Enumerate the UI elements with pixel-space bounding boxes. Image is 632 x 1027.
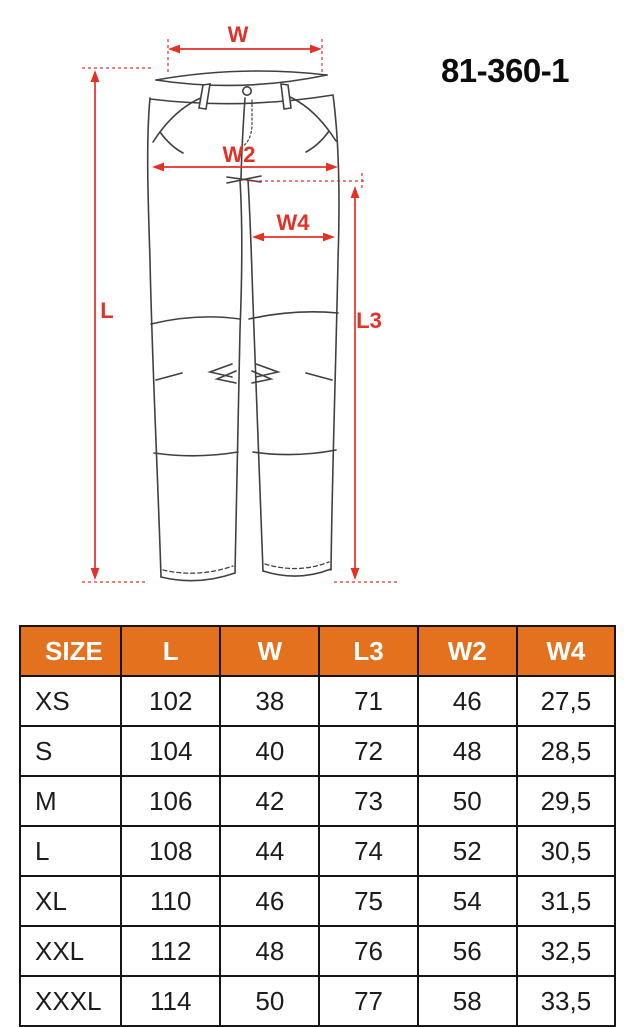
header-cell-size: SIZE <box>20 626 121 676</box>
size-table: SIZE L W L3 W2 W4 XS 102 38 71 46 27,5 S… <box>19 625 616 1027</box>
cell: 40 <box>220 726 319 776</box>
size-table-header-row: SIZE L W L3 W2 W4 <box>20 626 615 676</box>
cell-size: XXL <box>20 926 121 976</box>
cell: 50 <box>418 776 517 826</box>
cell: 108 <box>121 826 220 876</box>
cell-size: L <box>20 826 121 876</box>
table-row: S 104 40 72 48 28,5 <box>20 726 615 776</box>
dimension-label-w4: W4 <box>277 210 311 235</box>
table-row: XXL 112 48 76 56 32,5 <box>20 926 615 976</box>
dimension-label-l: L <box>100 298 113 323</box>
cell: 46 <box>220 876 319 926</box>
header-cell-w4: W4 <box>517 626 615 676</box>
cell: 72 <box>319 726 417 776</box>
cell: 54 <box>418 876 517 926</box>
cell: 52 <box>418 826 517 876</box>
cell: 106 <box>121 776 220 826</box>
cell-size: XL <box>20 876 121 926</box>
header-cell-l3: L3 <box>319 626 417 676</box>
cell: 77 <box>319 976 417 1026</box>
cell: 73 <box>319 776 417 826</box>
table-row: M 106 42 73 50 29,5 <box>20 776 615 826</box>
dimension-lines <box>82 39 397 582</box>
waist-button <box>243 87 251 95</box>
cell: 48 <box>418 726 517 776</box>
cell: 110 <box>121 876 220 926</box>
dimension-label-w: W <box>228 22 249 47</box>
cell: 114 <box>121 976 220 1026</box>
header-cell-w: W <box>220 626 319 676</box>
cell: 102 <box>121 676 220 726</box>
cell: 29,5 <box>517 776 615 826</box>
cell: 33,5 <box>517 976 615 1026</box>
table-row: XXXL 114 50 77 58 33,5 <box>20 976 615 1026</box>
cell: 31,5 <box>517 876 615 926</box>
cell: 38 <box>220 676 319 726</box>
cell: 50 <box>220 976 319 1026</box>
table-row: XL 110 46 75 54 31,5 <box>20 876 615 926</box>
pants-diagram: W W2 W4 L L3 <box>0 0 632 620</box>
cell: 104 <box>121 726 220 776</box>
cell: 42 <box>220 776 319 826</box>
cell: 32,5 <box>517 926 615 976</box>
cell: 112 <box>121 926 220 976</box>
header-cell-l: L <box>121 626 220 676</box>
cell-size: XXXL <box>20 976 121 1026</box>
dimension-label-l3: L3 <box>356 308 382 333</box>
cell: 48 <box>220 926 319 976</box>
cell: 58 <box>418 976 517 1026</box>
dimension-label-w2: W2 <box>223 142 256 167</box>
cell: 74 <box>319 826 417 876</box>
table-row: L 108 44 74 52 30,5 <box>20 826 615 876</box>
cell: 27,5 <box>517 676 615 726</box>
cell: 28,5 <box>517 726 615 776</box>
pants-technical-drawing: W W2 W4 L L3 <box>0 0 632 620</box>
cell-size: M <box>20 776 121 826</box>
header-cell-w2: W2 <box>418 626 517 676</box>
cell: 30,5 <box>517 826 615 876</box>
cell: 44 <box>220 826 319 876</box>
cell: 75 <box>319 876 417 926</box>
cell-size: S <box>20 726 121 776</box>
cell: 71 <box>319 676 417 726</box>
cell: 56 <box>418 926 517 976</box>
cell: 46 <box>418 676 517 726</box>
cell: 76 <box>319 926 417 976</box>
model-number: 81-360-1 <box>420 52 590 90</box>
cell-size: XS <box>20 676 121 726</box>
table-row: XS 102 38 71 46 27,5 <box>20 676 615 726</box>
